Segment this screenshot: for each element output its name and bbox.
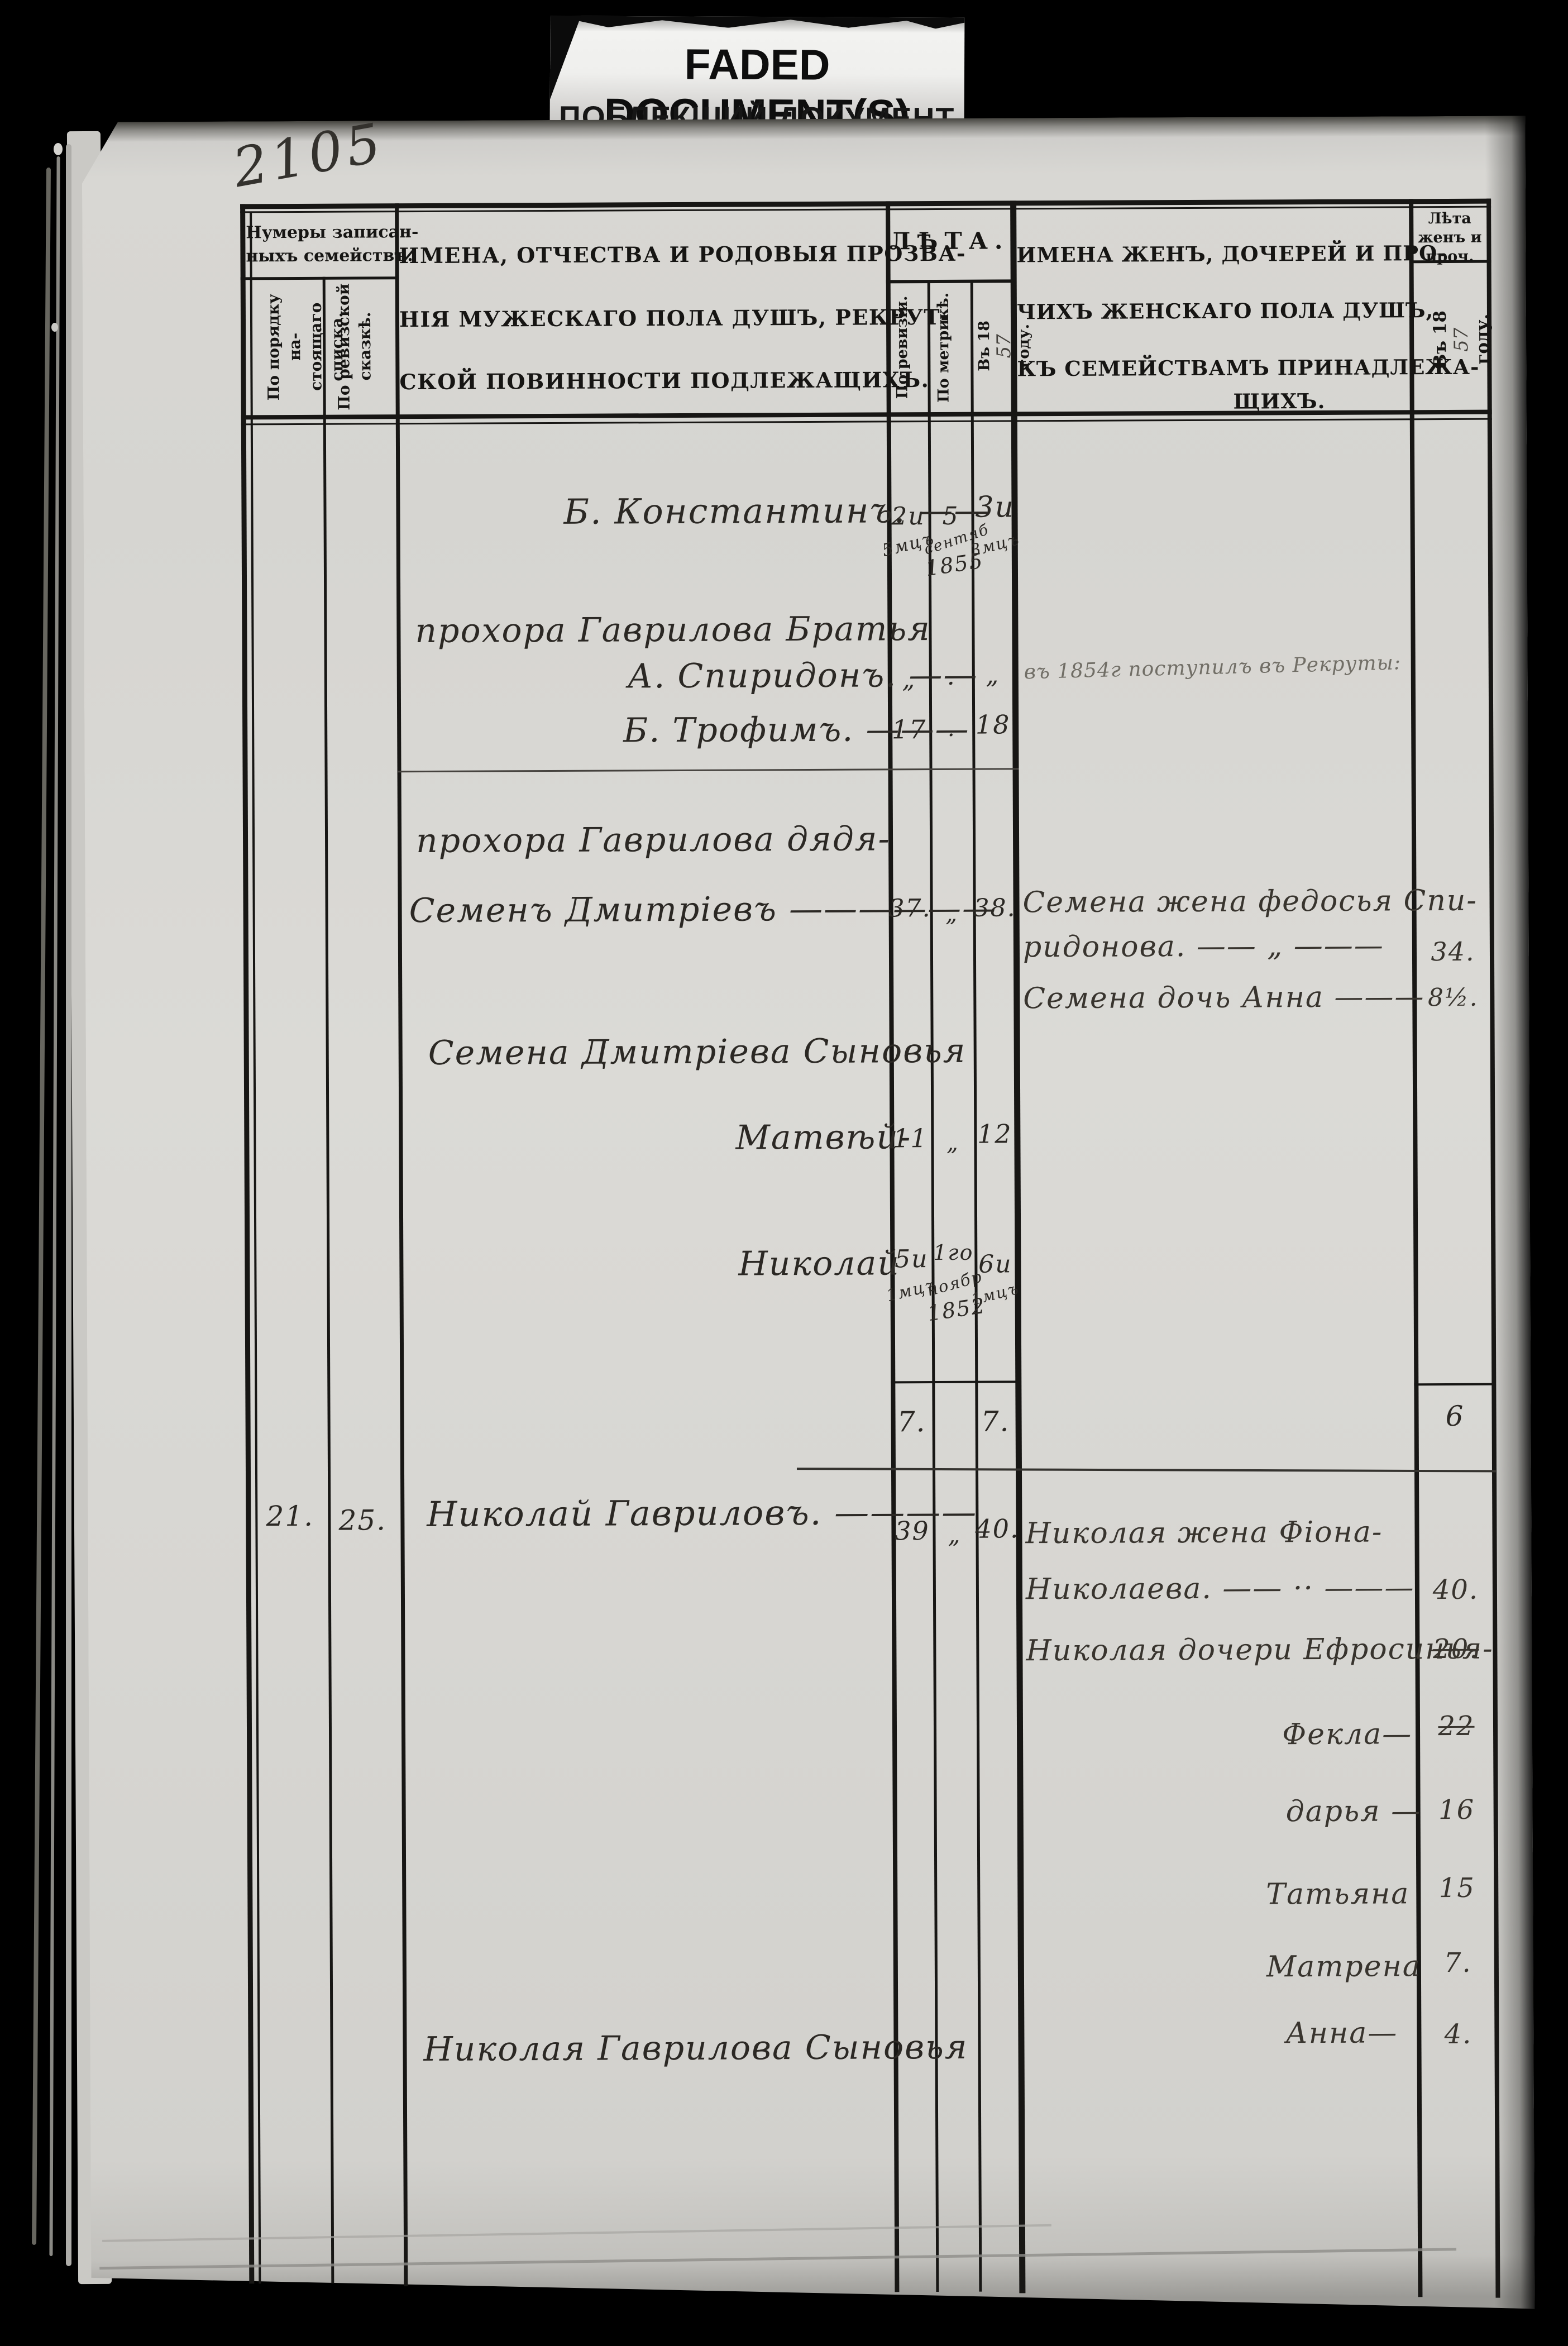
header-male-names-line1: ИМЕНА, ОТЧЕСТВА И РОДОВЫЯ ПРОЗВА-	[399, 241, 883, 268]
entry-family21-skazka-number: 25.	[332, 1504, 393, 1536]
entry-anna-age: 4.	[1422, 2019, 1494, 2051]
totals-top-rule-women	[1414, 1383, 1494, 1386]
header-po-metrike: По метрикѣ.	[935, 285, 965, 409]
column-divider-numbers-names	[395, 203, 408, 2286]
header-female-names-line3: КЪ СЕМЕЙСТВАМЪ ПРИНАДЛЕЖА-	[1017, 355, 1408, 381]
entry-efrosinya-age: 20.	[1417, 1633, 1495, 1665]
header-by-revision-tale: По ревизской сказкѣ.	[333, 280, 388, 413]
entry-nikolay-jr-age-revision: 5и	[891, 1245, 931, 1273]
entry-prokhor-brothers-label: прохора Гаврилова Братья	[415, 609, 931, 651]
header-po-revizii: По ревизіи.	[893, 285, 923, 409]
header-wives-leta-line2: женъ и	[1411, 228, 1489, 248]
entry-darya-age: 16	[1418, 1794, 1496, 1826]
entry-matvey-name: Матвѣй-	[735, 1117, 911, 1157]
entry-nikolay-wife-age: 40.	[1417, 1574, 1495, 1606]
header-wives-leta: Лѣта женъ и проч.	[1411, 209, 1489, 267]
totals-1857: 7.	[974, 1405, 1016, 1437]
entry-nikolay-gavrilov-age-1857: 40.	[975, 1513, 1017, 1544]
header-by-current-list: По порядку на- стоящаго списка.	[263, 280, 317, 413]
entry-family21-list-number: 21.	[259, 1500, 321, 1532]
header-wives-v-1857-prefix: Въ 18	[1430, 310, 1450, 369]
entry-semyon-sons-label: Семена Дмитріева Сыновья	[428, 1031, 967, 1073]
entry-spiridon-ditto-metrika: ·	[931, 670, 972, 698]
entry-fekla-name: Фекла—	[1282, 1717, 1412, 1751]
header-v-1857-godu: Въ 1857году.	[976, 283, 1007, 409]
entry-spiridon-recruit-note: въ 1854г поступилъ въ Рекруты:	[1024, 651, 1401, 684]
header-by-revision-tale-line2: сказкѣ.	[355, 280, 376, 413]
totals-revision: 7.	[891, 1406, 932, 1438]
totals-bottom-rule	[797, 1468, 1496, 1472]
entry-anna-name: Анна—	[1285, 2016, 1398, 2050]
page-content: 2105 Нумеры записан- ныхъ семействъ. П	[0, 0, 1568, 2346]
page-number: 2105	[228, 111, 389, 200]
entry-matrena-name: Матрена	[1266, 1950, 1421, 1984]
header-wives-v-1857-handwritten-year: 57	[1450, 274, 1473, 405]
entry-konstantin-age-1857: 3и	[975, 490, 1011, 524]
entry-konstantin-age-revision: 2и	[888, 502, 928, 531]
bottom-sheet-streak	[99, 2248, 1456, 2269]
entry-matvey-age-revision: 11	[890, 1123, 931, 1153]
header-family-numbers-line2: ныхъ семействъ.	[246, 244, 398, 268]
entry-nikolay-wife-line1: Николая жена Фіона-	[1025, 1516, 1383, 1551]
header-wives-v-1857-suffix: году.	[1473, 314, 1493, 365]
header-wives-leta-line3: проч.	[1411, 247, 1489, 267]
header-family-numbers-line1: Нумеры записан-	[246, 221, 398, 245]
entry-matvey-ditto-metrika: „	[932, 1130, 973, 1156]
header-family-numbers: Нумеры записан- ныхъ семействъ.	[246, 221, 398, 268]
entry-trofim-age-1857: 18	[974, 709, 1012, 739]
entry-semyon-age-1857: 38.	[973, 894, 1014, 922]
header-v-1857-handwritten-year: 57	[993, 287, 1016, 404]
entry-semyon-daughter-anna: Семена дочь Анна ———	[1023, 980, 1424, 1015]
header-male-names-line3: СКОЙ ПОВИННОСТИ ПОДЛЕЖАЩИХЪ.	[399, 367, 884, 394]
entry-konstantin-metrika-day: 5	[930, 502, 971, 531]
entry-nikolay-jr-name: Николай	[738, 1244, 900, 1283]
header-leta: ЛѢТА.	[886, 227, 1013, 255]
header-v-1857-prefix: Въ 18	[976, 321, 993, 371]
header-female-names-line1: ИМЕНА ЖЕНЪ, ДОЧЕРЕЙ И ПРО-	[1016, 241, 1407, 267]
entry-trofim-age-revision: 17	[889, 714, 929, 744]
entry-tatyana-age: 15	[1418, 1872, 1496, 1904]
totals-women-1857: 6	[1416, 1400, 1494, 1433]
entry-prokhor-uncle-label: прохора Гаврилова дядя-	[416, 819, 891, 861]
totals-top-rule	[891, 1380, 1018, 1383]
entry-semyon-wife-line1: Семена жена федосья Спи-	[1022, 884, 1478, 920]
table-border-right	[1486, 199, 1500, 2298]
header-wives-v-1857-godu: Въ 1857году.	[1430, 270, 1465, 409]
entry-spiridon-ditto-revision: „	[889, 665, 929, 694]
header-by-current-list-line1: По порядку на-	[263, 280, 306, 413]
bottom-sheet-streak	[102, 2224, 1051, 2242]
entry-trofim-dot-metrika: ·	[931, 723, 972, 748]
row-separator	[398, 768, 1019, 772]
entry-nikolay-sons-label: Николая Гаврилова Сыновья	[423, 2028, 968, 2069]
header-female-names-line4: ЩИХЪ.	[1234, 389, 1326, 414]
entry-nikolay-wife-line2: Николаева. —— ·· ———	[1026, 1571, 1415, 1606]
scanned-document-background: FADED DOCUMENT(S) ПОБЛЕКШИЙ ДОКУМЕНТ 210…	[0, 0, 1568, 2346]
entry-nikolay-jr-age-1857: 6и	[976, 1250, 1014, 1278]
entry-semyon-wife-age: 34.	[1414, 937, 1492, 967]
column-divider-list-revision	[323, 277, 334, 2283]
entry-semyon-daughter-anna-age: 8½.	[1414, 983, 1492, 1012]
entry-tatyana-name: Татьяна	[1266, 1877, 1409, 1911]
header-male-names-line2: НІЯ МУЖЕСКАГО ПОЛА ДУШЪ, РЕКРУТ-	[399, 304, 884, 332]
entry-matrena-age: 7.	[1422, 1947, 1494, 1979]
entry-semyon-wife-line2: ридонова. —— „ ———	[1023, 929, 1384, 964]
entry-fekla-age: 22	[1417, 1710, 1495, 1742]
entry-nikolay-gavrilov-ditto-metrika: „	[934, 1521, 975, 1549]
header-bottom-line-inner	[241, 418, 1492, 426]
entry-nikolay-gavrilov-age-revision: 39	[891, 1516, 933, 1546]
entry-semyon-age-revision: 37.	[888, 894, 930, 923]
entry-semyon-ditto-metrika: „	[931, 901, 973, 927]
header-wives-leta-line1: Лѣта	[1411, 209, 1489, 229]
header-by-revision-tale-line1: По ревизской	[333, 280, 355, 413]
entry-spiridon-ditto-1857: „	[975, 661, 1011, 689]
header-female-names-line2: ЧИХЪ ЖЕНСКАГО ПОЛА ДУШЪ,	[1017, 298, 1408, 324]
entry-nikolay-jr-metrika-day: 1го	[933, 1240, 974, 1265]
entry-matvey-age-1857: 12	[974, 1119, 1015, 1149]
entry-darya-name: дарья —	[1286, 1794, 1422, 1828]
